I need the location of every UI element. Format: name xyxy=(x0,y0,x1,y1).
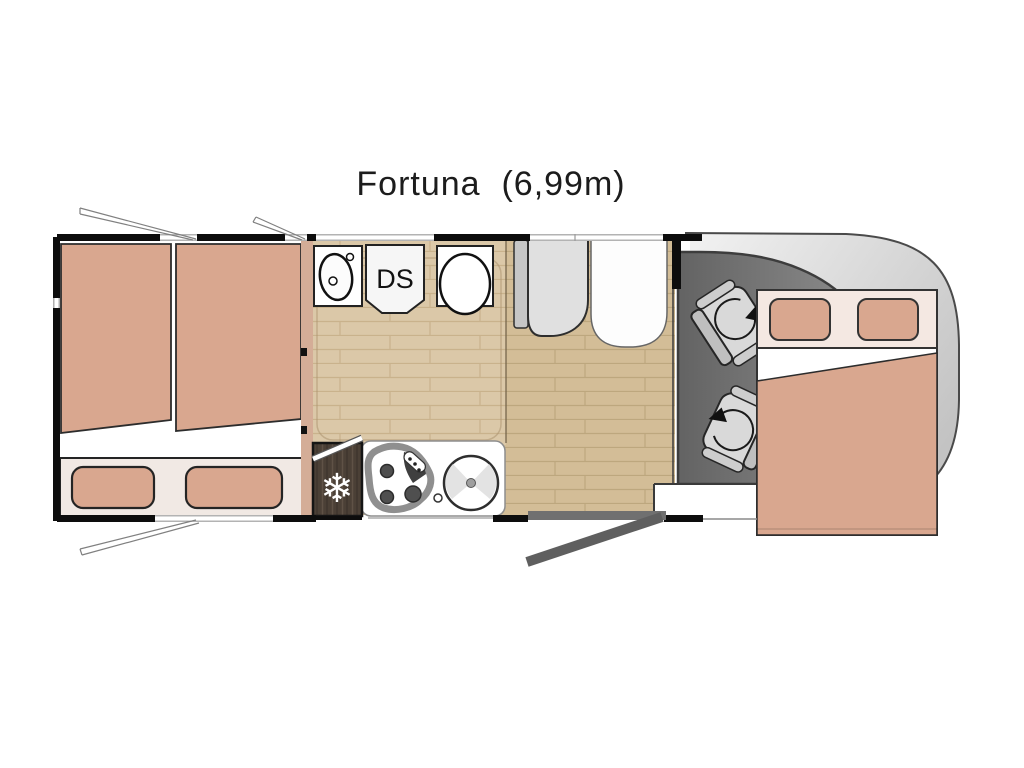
wall-segment xyxy=(53,237,60,298)
wall-segment xyxy=(672,237,681,289)
divider-hinge-mark xyxy=(301,426,307,434)
hob-knob-dot xyxy=(417,468,421,472)
burner-icon xyxy=(405,486,421,502)
wall-segment xyxy=(197,234,285,241)
bedroom-divider-wall xyxy=(301,241,313,518)
wall-segment xyxy=(664,515,703,522)
wall-segment xyxy=(307,234,316,241)
page-title: Fortuna (6,99m) xyxy=(356,165,625,203)
wall-segment xyxy=(313,516,362,520)
snowflake-icon: ❄ xyxy=(320,466,354,512)
step-area xyxy=(654,484,757,515)
burner-icon xyxy=(381,465,394,478)
entry-step xyxy=(654,484,757,515)
burner-icon xyxy=(381,491,394,504)
bathroom: DS xyxy=(314,245,493,314)
bench-cushion-left xyxy=(72,467,154,508)
rear-bedroom xyxy=(60,241,313,518)
kitchen: ❄ xyxy=(313,438,505,516)
wall-segment xyxy=(434,234,530,241)
sink-knob-icon xyxy=(434,494,442,502)
hob-knob-dot xyxy=(413,462,417,466)
front-bed-duvet xyxy=(757,353,937,535)
hob-knob-dot xyxy=(408,457,412,461)
wall-segment xyxy=(493,515,528,522)
wall-segment xyxy=(53,308,60,521)
single-bed-left xyxy=(61,244,171,433)
wall-segment xyxy=(57,234,160,241)
divider-hinge-mark xyxy=(301,348,307,356)
bench-cushion-right xyxy=(186,467,282,508)
drop-down-bed xyxy=(757,290,937,535)
pillow-left xyxy=(770,299,830,340)
toilet-icon xyxy=(440,254,490,314)
window-frames xyxy=(53,298,60,308)
faucet-icon xyxy=(347,254,354,261)
wall-segment xyxy=(663,234,702,241)
motorhome-floorplan: Fortuna (6,99m) DS ❄ xyxy=(0,0,1024,768)
bench-backrest xyxy=(514,240,528,328)
floorplan-page: Fortuna (6,99m) DS ❄ xyxy=(0,0,1024,768)
drain-icon xyxy=(329,277,337,285)
pillow-right xyxy=(858,299,918,340)
hob-outline xyxy=(368,446,431,509)
dinette-table xyxy=(591,238,667,347)
wall-segment xyxy=(273,515,316,522)
bench-seat xyxy=(528,240,588,336)
sink-drain-icon xyxy=(467,479,476,488)
wall-segment xyxy=(57,515,155,522)
shower-label: DS xyxy=(376,264,414,294)
single-bed-right xyxy=(176,244,301,431)
